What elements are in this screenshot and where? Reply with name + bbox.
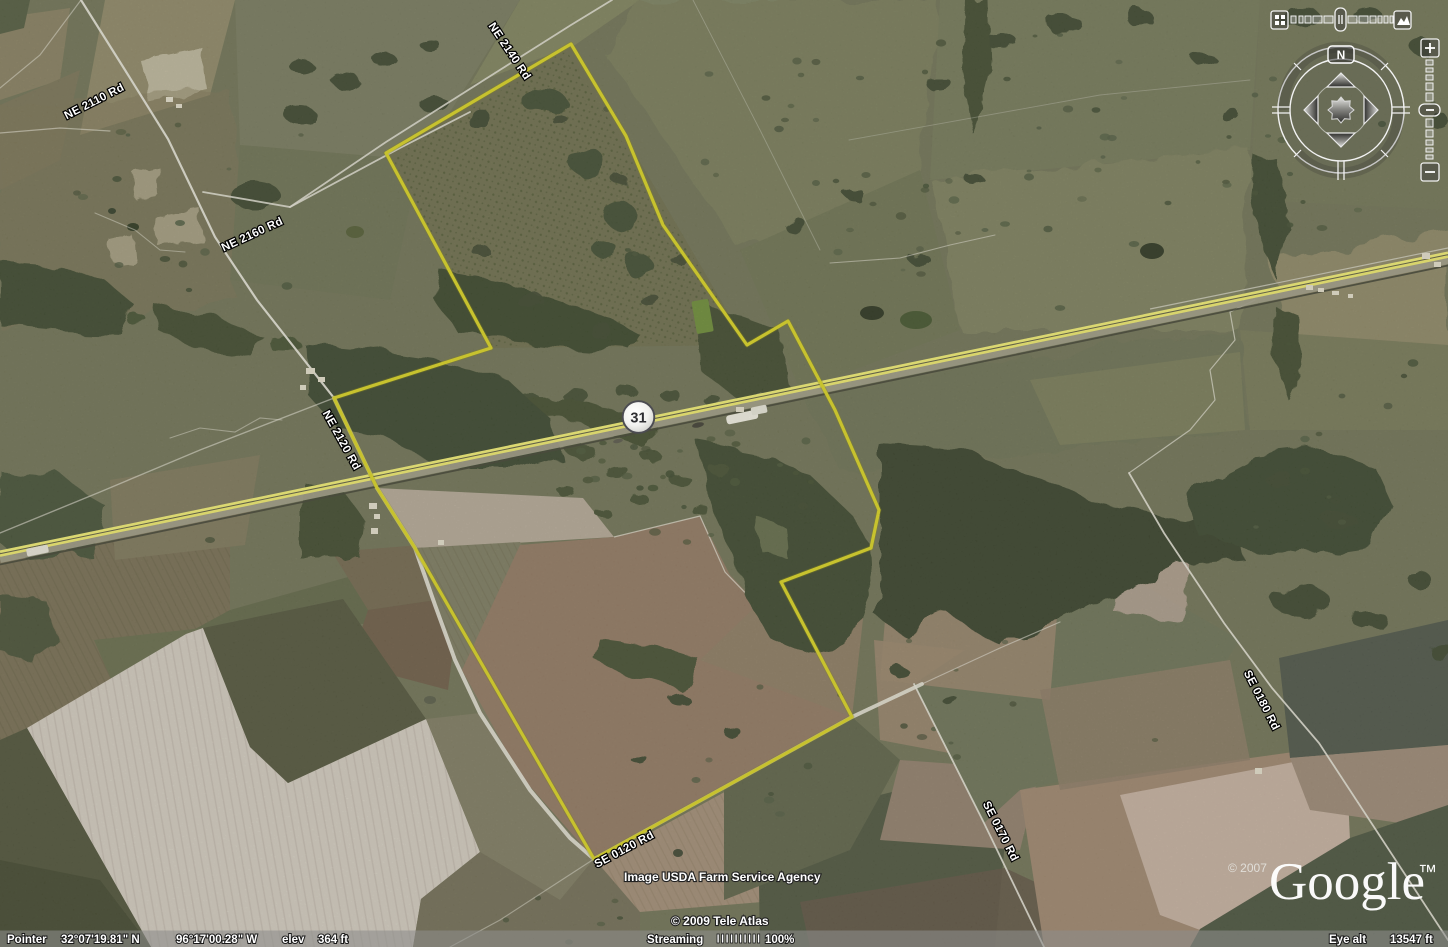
svg-text:96°17'00.28" W: 96°17'00.28" W — [176, 934, 257, 946]
svg-text:© 2007: © 2007 — [1228, 861, 1267, 875]
svg-text:31: 31 — [630, 411, 646, 427]
svg-text:364 ft: 364 ft — [318, 934, 348, 946]
svg-text:Image USDA Farm Service Agency: Image USDA Farm Service Agency — [624, 870, 821, 884]
svg-text:© 2009 Tele Atlas: © 2009 Tele Atlas — [671, 914, 769, 928]
svg-text:Eye alt: Eye alt — [1329, 934, 1366, 946]
svg-text:N: N — [1337, 48, 1346, 62]
svg-text:Streaming: Streaming — [647, 934, 703, 946]
svg-text:Google: Google — [1269, 853, 1425, 911]
svg-text:32°07'19.81" N: 32°07'19.81" N — [61, 934, 140, 946]
svg-text:™: ™ — [1418, 862, 1437, 883]
svg-text:13547 ft: 13547 ft — [1390, 934, 1433, 946]
svg-text:elev: elev — [282, 934, 305, 946]
svg-text:Pointer: Pointer — [7, 934, 47, 946]
svg-text:100%: 100% — [765, 934, 794, 946]
